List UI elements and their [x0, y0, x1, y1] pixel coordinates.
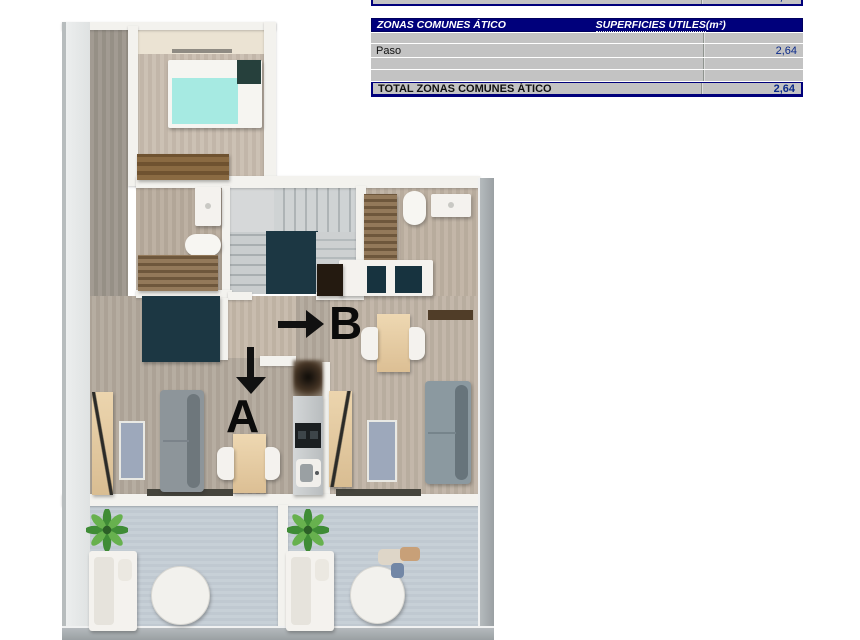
washbasin-b [431, 194, 471, 217]
round-table-a [151, 566, 210, 625]
table-row-empty-1 [371, 33, 803, 43]
marker-b-arrow-shaft [278, 321, 306, 328]
wall-bathA-stairs [222, 186, 230, 292]
table-row-empty-2 [371, 58, 803, 69]
sofa-b-cushion-line [428, 432, 456, 434]
stairs-left-treads [228, 232, 267, 294]
stairs-upper-treads [274, 186, 362, 234]
row-total-estudio-b-value: 40,76 [701, 0, 801, 4]
table-gap [371, 6, 803, 18]
wall-void-right [220, 298, 228, 360]
plant-a-icon [86, 509, 128, 551]
surfaces-table: TOTAL ESTUDIO ÁTICO B 40,76 ZONAS COMUNE… [371, 0, 803, 97]
washbasin-a [195, 187, 221, 226]
marker-b-arrow [278, 309, 324, 339]
lounger-a [89, 551, 137, 631]
sofa-a-cushion-line [163, 440, 189, 442]
counter-b-panel-1 [367, 266, 386, 293]
terrace-b-bag [400, 547, 420, 561]
wall-bedroom-right [264, 22, 276, 186]
washbasin-a-faucet [205, 203, 211, 209]
table-row-empty-3 [371, 70, 803, 81]
wardrobe [137, 154, 229, 180]
lounger-b [286, 551, 334, 631]
header-superficies: SUPERFICIES UTILES (m²) [596, 19, 726, 31]
chair-a-right [265, 447, 280, 480]
kitchen-sink [296, 459, 321, 487]
lounger-a-pillow [118, 559, 132, 581]
cooktop-burner-1 [298, 431, 306, 439]
sofa-a [160, 390, 204, 492]
counter-b-panel-2 [395, 266, 422, 293]
marker-b-label: B [329, 300, 362, 346]
rug-b [367, 420, 397, 482]
stair-landing [228, 186, 274, 234]
row-paso-label: Paso [371, 45, 703, 57]
marker-a-label: A [226, 393, 259, 439]
row-total-zonas-label: TOTAL ZONAS COMUNES ÁTICO [373, 83, 701, 95]
lounger-b-pillow [315, 559, 329, 581]
wall-stairs-bottom-left [228, 292, 252, 300]
closet-a [138, 255, 218, 291]
terrace-b-figure [391, 563, 404, 578]
sliding-door-b [336, 489, 421, 496]
counter-b [339, 260, 433, 296]
marker-a-arrow [233, 347, 269, 395]
row-paso-value: 2,64 [776, 45, 797, 57]
void-a [142, 296, 220, 362]
bed-mattress [172, 78, 238, 124]
row-total-zonas-value: 2,64 [701, 83, 801, 94]
bedroom-door-track [172, 49, 232, 53]
chair-a-left [217, 447, 234, 480]
corridor-floor [90, 30, 128, 296]
lounger-b-cushion [291, 557, 311, 625]
shelf-b [428, 310, 473, 320]
table-row-paso: Paso 2,64 [371, 44, 803, 57]
stair-void [266, 231, 318, 294]
row-total-zonas-comunes: TOTAL ZONAS COMUNES ÁTICO 2,64 [371, 82, 803, 97]
row-total-estudio-b: TOTAL ESTUDIO ÁTICO B 40,76 [371, 0, 803, 6]
table-header: ZONAS COMUNES ÁTICO SUPERFICIES UTILES (… [371, 18, 803, 32]
washbasin-b-faucet [448, 202, 454, 208]
row-total-estudio-b-label: TOTAL ESTUDIO ÁTICO B [373, 0, 701, 3]
screenshot-canvas: A B TOTAL ESTUDIO ÁTICO B 40,76 ZONAS CO… [0, 0, 860, 640]
kitchen-sink-basin [300, 464, 313, 482]
entry-dark-box [317, 264, 343, 296]
plant-b-icon [287, 509, 329, 551]
marker-a-arrow-shaft [247, 347, 254, 377]
toilet-b [403, 191, 426, 225]
chair-b-left [361, 327, 378, 360]
tv-unit-a [92, 392, 113, 495]
dining-table-b [377, 314, 410, 372]
chair-b-right [409, 327, 425, 360]
cooktop-burner-2 [310, 431, 318, 439]
cooktop [295, 423, 321, 448]
toilet-a [185, 234, 221, 256]
lounger-a-cushion [94, 557, 114, 625]
shower-mat-b [364, 194, 397, 262]
wall-right-outer [478, 178, 494, 640]
rug-a [119, 421, 145, 480]
dining-table-a [233, 434, 266, 493]
bed-headboard [237, 60, 261, 84]
cabinet-b [329, 391, 352, 487]
wall-top [62, 22, 276, 30]
header-zonas-comunes: ZONAS COMUNES ÁTICO [372, 19, 802, 31]
sofa-b [425, 381, 471, 484]
kitchen-sink-faucet [315, 471, 319, 475]
extractor-hood [293, 360, 323, 398]
marker-b-arrow-head [306, 310, 324, 338]
sofa-b-backrest [455, 385, 468, 480]
bed [168, 60, 262, 128]
